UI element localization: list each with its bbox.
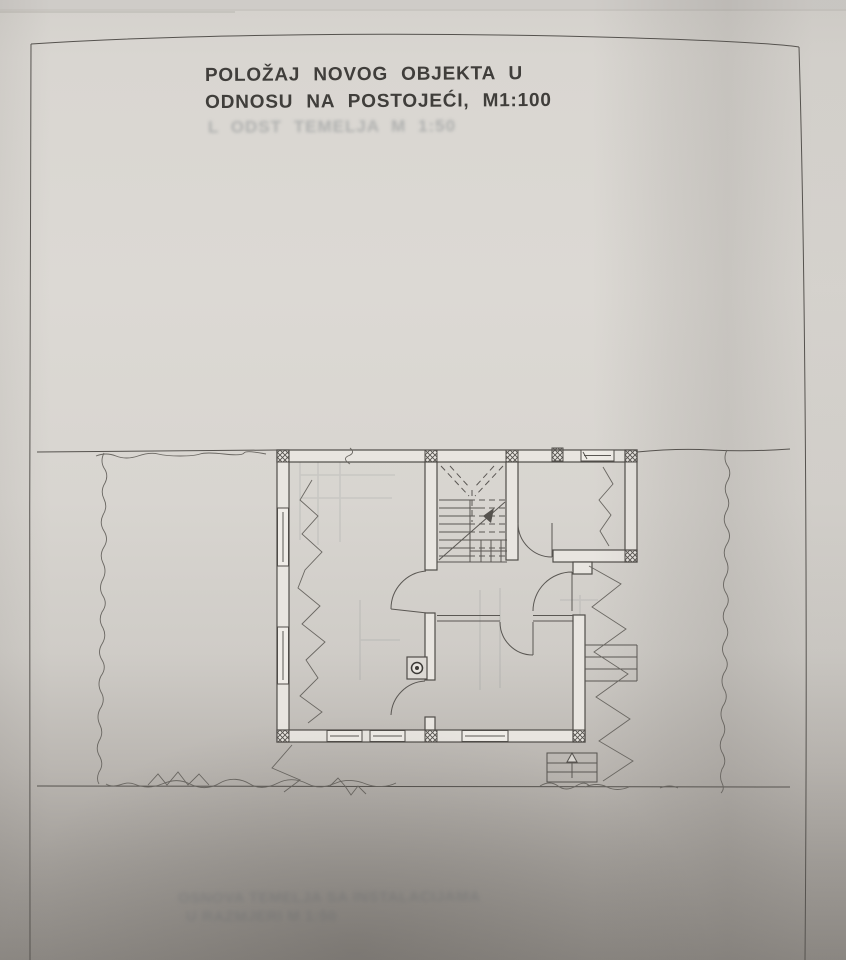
drawing-title: POLOŽAJ NOVOG OBJEKTA U ODNOSU NA POSTOJ… <box>205 60 552 116</box>
staircase <box>437 466 507 562</box>
scanned-page: POLOŽAJ NOVOG OBJEKTA U ODNOSU NA POSTOJ… <box>0 0 846 960</box>
terrain-lines <box>37 449 790 795</box>
page-frame <box>30 34 807 960</box>
bleedthrough-text-top: L ODST TEMELJA M 1:50 <box>208 116 456 137</box>
entrance-steps <box>547 753 597 782</box>
bleedthrough-text-bottom-1: OSNOVA TEMELJA SA INSTALACIJAMA <box>178 888 481 907</box>
floor-plan-drawing <box>0 0 846 960</box>
paper-edge <box>0 0 846 12</box>
bleedthrough-lines <box>300 455 598 690</box>
stair-direction-arrow <box>483 508 494 523</box>
title-line-1: POLOŽAJ NOVOG OBJEKTA U <box>205 60 552 89</box>
bleedthrough-text-bottom-2: U RAZMJERI M 1:50 <box>186 908 337 926</box>
building-walls <box>277 448 637 742</box>
title-line-2: ODNOSU NA POSTOJEĆI, M1:100 <box>205 87 552 116</box>
windows <box>278 450 615 742</box>
chimney-symbol <box>407 657 427 679</box>
steps-up-arrow <box>567 753 577 762</box>
